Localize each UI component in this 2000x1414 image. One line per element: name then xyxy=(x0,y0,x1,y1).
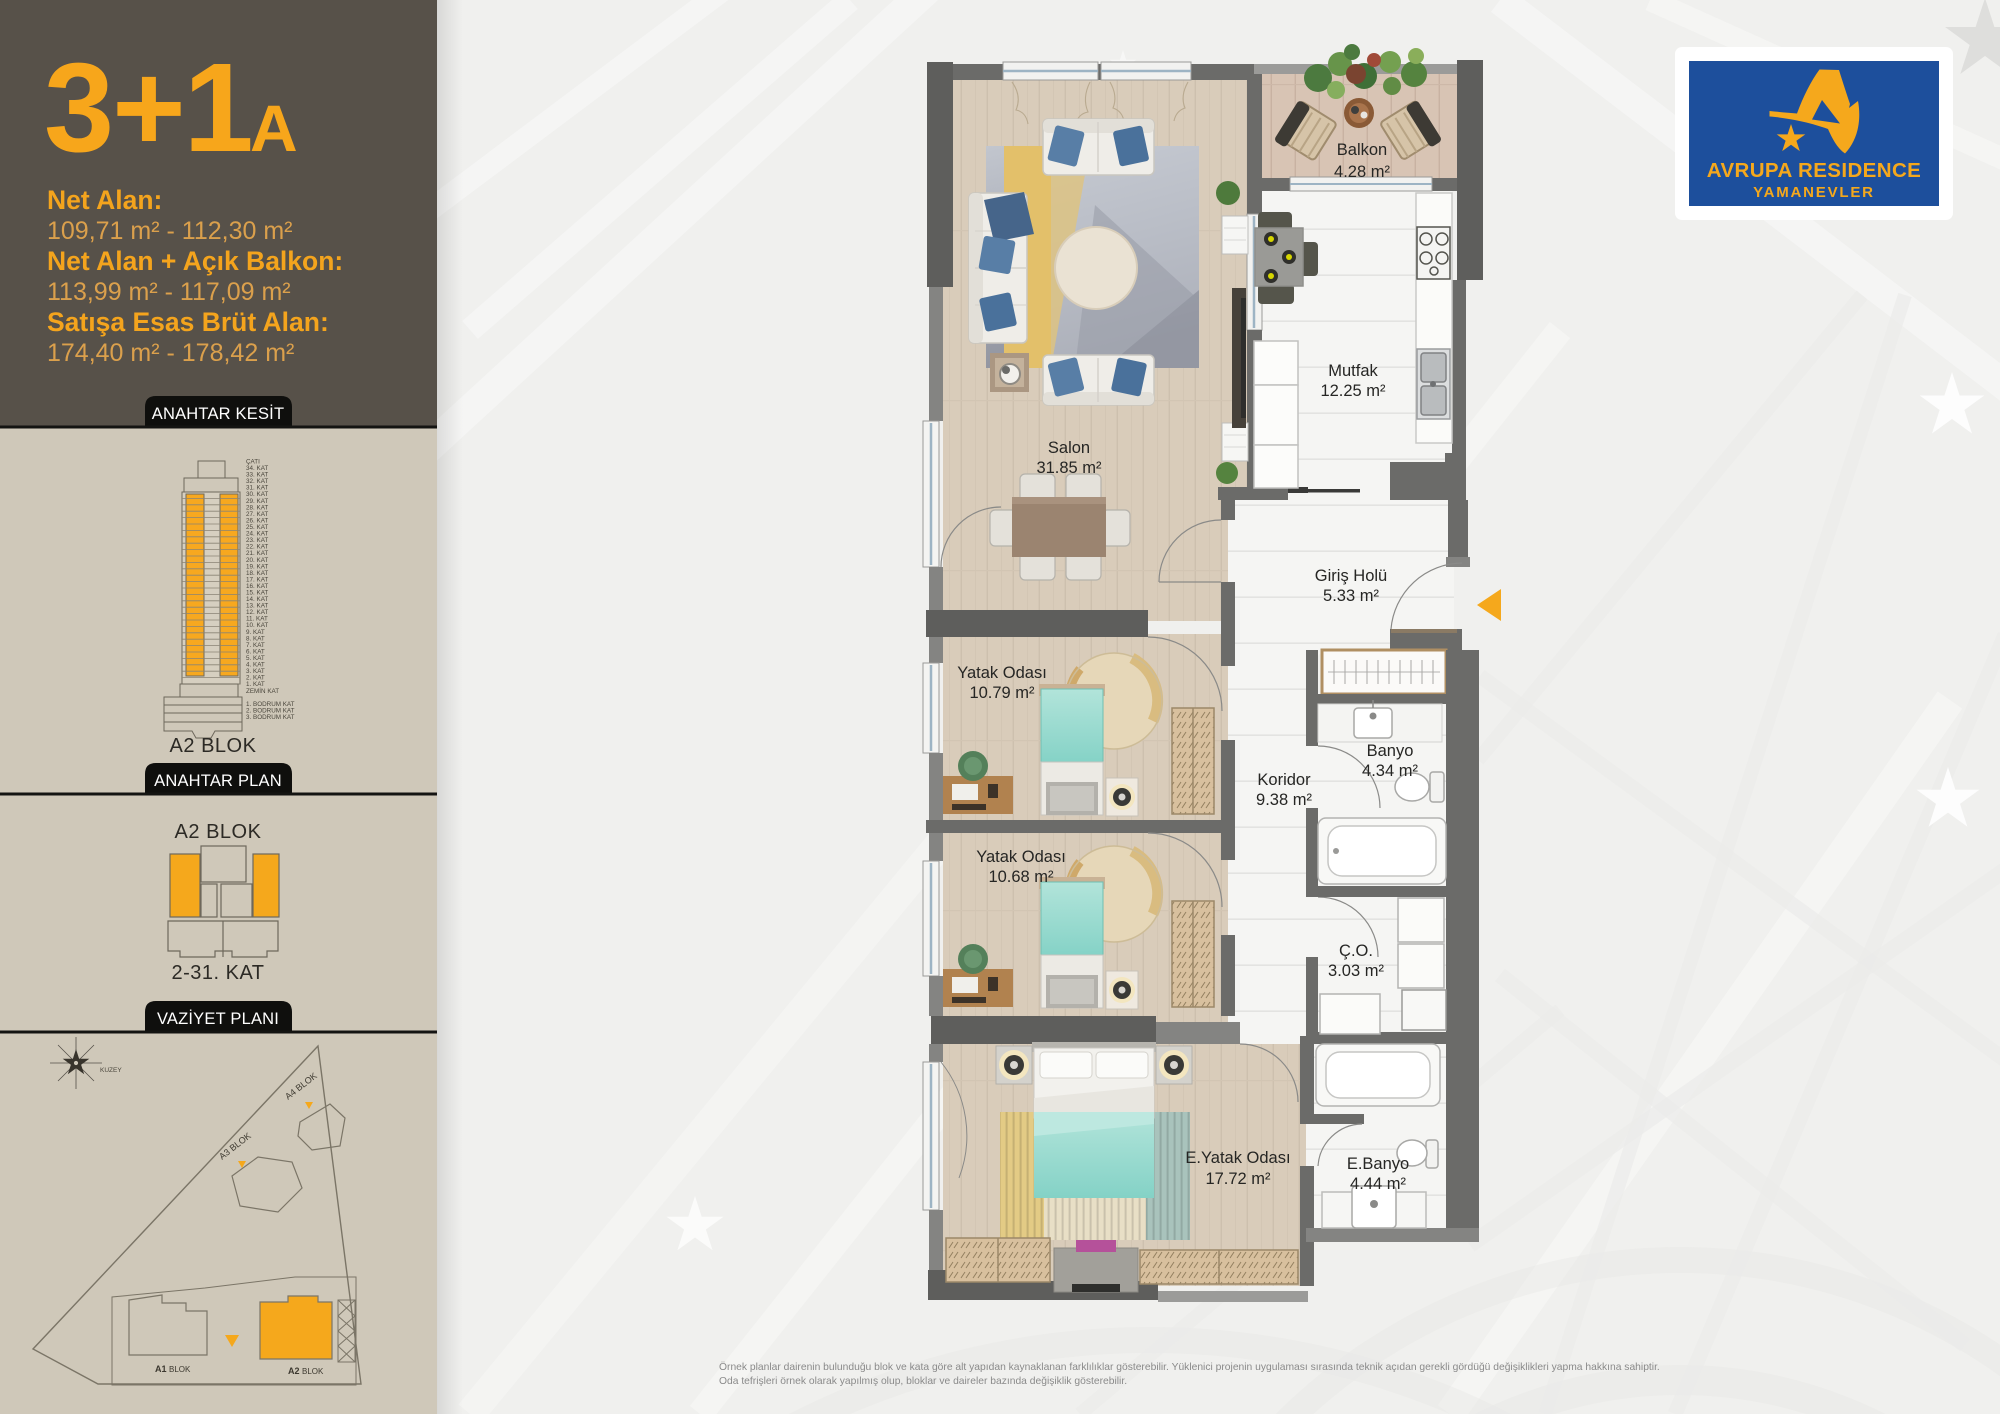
svg-text:31.85 m²: 31.85 m² xyxy=(1036,459,1102,477)
svg-text:5.33 m²: 5.33 m² xyxy=(1323,587,1379,605)
svg-text:A: A xyxy=(250,91,298,165)
svg-text:10.79 m²: 10.79 m² xyxy=(969,684,1035,702)
svg-text:AVRUPA RESIDENCE: AVRUPA RESIDENCE xyxy=(1707,159,1921,182)
svg-text:E.Banyo: E.Banyo xyxy=(1347,1155,1409,1173)
svg-text:4.28 m²: 4.28 m² xyxy=(1334,163,1390,181)
svg-text:A1 BLOK: A1 BLOK xyxy=(155,1364,191,1374)
svg-text:109,71 m² - 112,30 m²: 109,71 m² - 112,30 m² xyxy=(47,217,292,245)
svg-text:4.34 m²: 4.34 m² xyxy=(1362,762,1418,780)
svg-text:113,99 m² - 117,09 m²: 113,99 m² - 117,09 m² xyxy=(47,278,291,306)
svg-text:Banyo: Banyo xyxy=(1367,742,1414,760)
svg-text:3. BODRUM KAT: 3. BODRUM KAT xyxy=(246,714,295,721)
svg-text:Yatak Odası: Yatak Odası xyxy=(957,664,1047,682)
svg-text:Ç.O.: Ç.O. xyxy=(1339,942,1373,960)
svg-text:Giriş Holü: Giriş Holü xyxy=(1315,567,1387,585)
svg-text:Satışa Esas Brüt Alan:: Satışa Esas Brüt Alan: xyxy=(47,307,329,337)
svg-text:12.25 m²: 12.25 m² xyxy=(1320,382,1386,400)
svg-text:Mutfak: Mutfak xyxy=(1328,362,1378,380)
svg-text:KUZEY: KUZEY xyxy=(100,1067,122,1074)
svg-text:A2 BLOK: A2 BLOK xyxy=(175,821,262,843)
svg-text:YAMANEVLER: YAMANEVLER xyxy=(1753,184,1875,201)
svg-text:ANAHTAR PLAN: ANAHTAR PLAN xyxy=(154,772,282,790)
svg-text:17.72 m²: 17.72 m² xyxy=(1205,1170,1271,1188)
svg-text:ANAHTAR KESİT: ANAHTAR KESİT xyxy=(152,404,284,423)
svg-text:Net Alan:: Net Alan: xyxy=(47,185,162,215)
svg-text:A2 BLOK: A2 BLOK xyxy=(288,1366,324,1376)
svg-text:Örnek planlar dairenin bulundu: Örnek planlar dairenin bulunduğu blok ve… xyxy=(719,1361,1660,1373)
svg-text:VAZİYET PLANI: VAZİYET PLANI xyxy=(157,1009,279,1028)
svg-text:Salon: Salon xyxy=(1048,439,1090,457)
svg-text:Oda tefrişleri örnek olarak ya: Oda tefrişleri örnek olarak yapılmış olu… xyxy=(719,1376,1127,1387)
svg-text:3+1: 3+1 xyxy=(44,37,252,178)
svg-text:4.44 m²: 4.44 m² xyxy=(1350,1175,1406,1193)
svg-text:Koridor: Koridor xyxy=(1257,771,1311,789)
svg-text:ZEMİN KAT: ZEMİN KAT xyxy=(246,686,279,695)
svg-text:Yatak Odası: Yatak Odası xyxy=(976,848,1066,866)
svg-text:Balkon: Balkon xyxy=(1337,141,1387,159)
svg-text:3.03 m²: 3.03 m² xyxy=(1328,962,1384,980)
svg-text:174,40 m² - 178,42 m²: 174,40 m² - 178,42 m² xyxy=(47,339,294,367)
svg-text:Net Alan + Açık Balkon:: Net Alan + Açık Balkon: xyxy=(47,246,343,276)
svg-text:9.38 m²: 9.38 m² xyxy=(1256,791,1312,809)
svg-text:E.Yatak Odası: E.Yatak Odası xyxy=(1185,1149,1290,1167)
svg-text:10.68 m²: 10.68 m² xyxy=(988,868,1054,886)
svg-text:2-31. KAT: 2-31. KAT xyxy=(171,962,264,984)
svg-text:A2 BLOK: A2 BLOK xyxy=(170,735,257,757)
